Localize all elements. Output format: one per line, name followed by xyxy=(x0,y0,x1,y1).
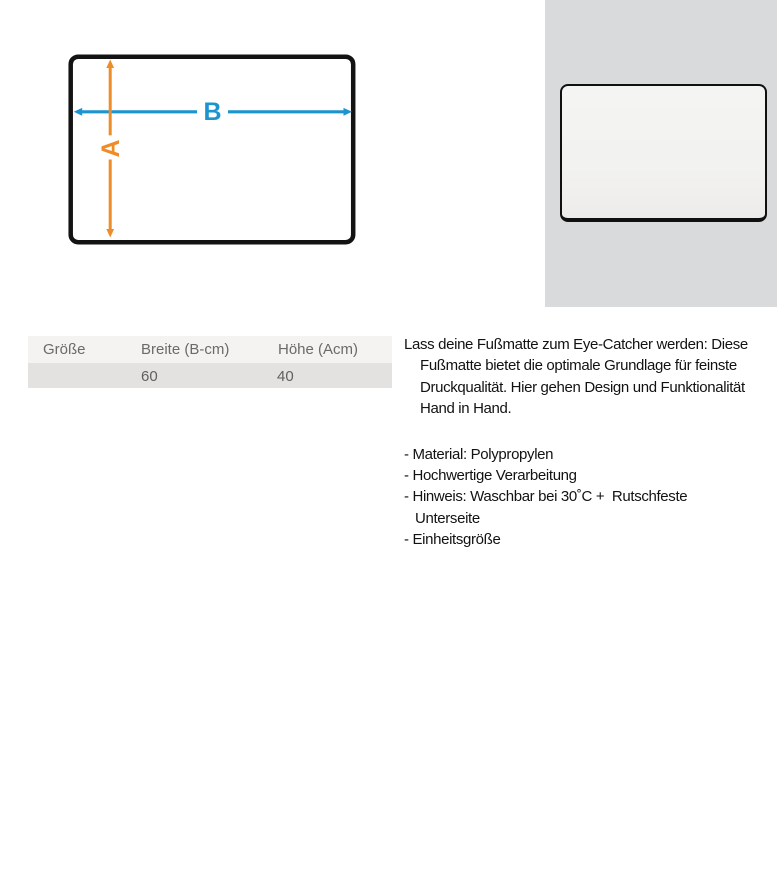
svg-text:A: A xyxy=(97,139,125,157)
svg-text:B: B xyxy=(203,98,221,126)
